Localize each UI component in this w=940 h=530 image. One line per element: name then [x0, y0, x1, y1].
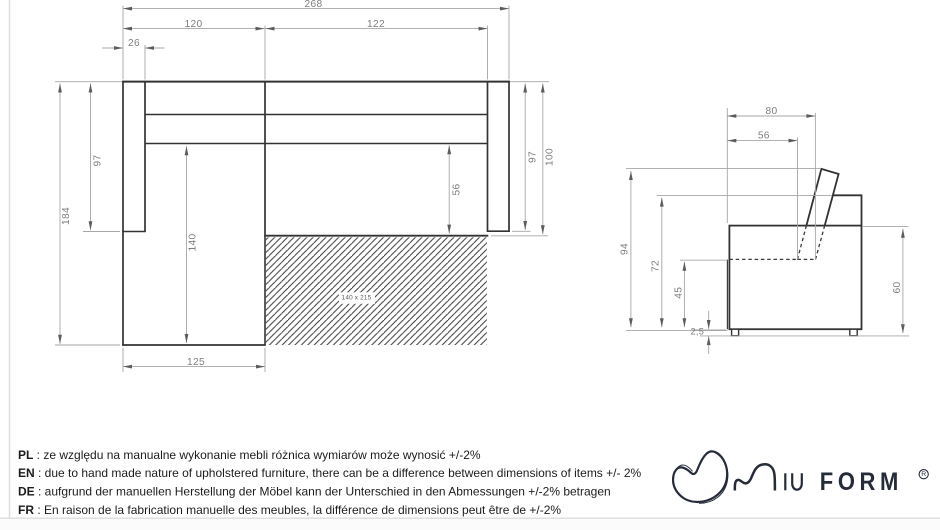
svg-text:FR : En raison de la fabricati: FR : En raison de la fabrication manuell… [18, 503, 561, 517]
svg-text:56: 56 [451, 184, 462, 196]
svg-text:2,5: 2,5 [690, 327, 704, 337]
svg-text:120: 120 [185, 19, 203, 30]
svg-text:268: 268 [305, 0, 323, 10]
svg-text:45: 45 [674, 287, 685, 299]
svg-text:72: 72 [651, 260, 662, 272]
svg-text:97: 97 [527, 151, 538, 163]
svg-text:60: 60 [892, 282, 903, 294]
svg-text:184: 184 [61, 207, 72, 225]
svg-text:R: R [921, 471, 926, 478]
svg-text:140 x 215: 140 x 215 [342, 294, 372, 301]
svg-text:122: 122 [367, 19, 385, 30]
svg-text:100: 100 [545, 148, 556, 166]
svg-text:FORM: FORM [820, 468, 903, 496]
svg-text:140: 140 [188, 234, 199, 252]
svg-text:26: 26 [128, 38, 140, 49]
svg-text:56: 56 [758, 131, 770, 142]
svg-text:97: 97 [92, 155, 103, 167]
svg-text:125: 125 [187, 357, 205, 368]
svg-text:EN : due to hand made nature o: EN : due to hand made nature of upholste… [18, 466, 641, 480]
svg-text:DE : aufgrund der manuellen He: DE : aufgrund der manuellen Herstellung … [18, 485, 611, 499]
svg-text:94: 94 [620, 243, 631, 255]
svg-text:80: 80 [766, 106, 778, 117]
svg-text:PL : ze względu na manualne wy: PL : ze względu na manualne wykonanie me… [18, 448, 481, 462]
